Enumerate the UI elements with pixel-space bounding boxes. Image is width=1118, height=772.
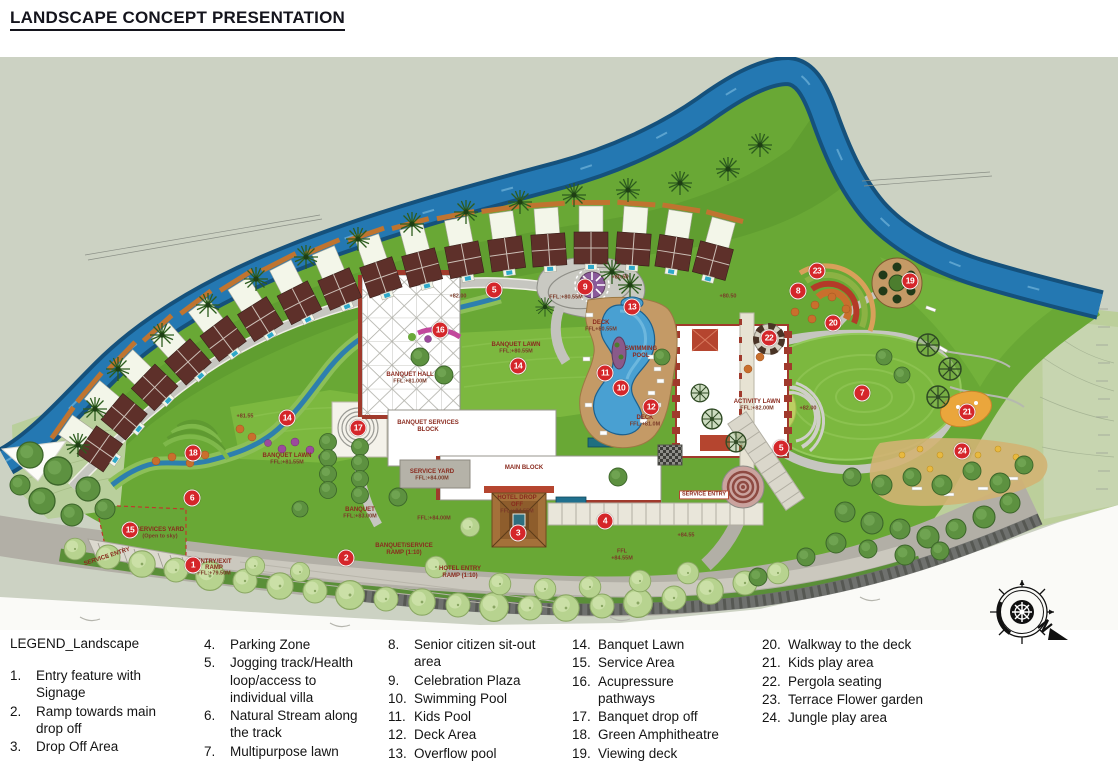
legend-item-11: 11.Kids Pool [388, 708, 550, 725]
legend-item-3: 3.Drop Off Area [10, 738, 160, 755]
legend-item-14: 14.Banquet Lawn [572, 636, 730, 653]
legend-item-9: 9.Celebration Plaza [388, 672, 550, 689]
legend-item-10: 10.Swimming Pool [388, 690, 550, 707]
legend-item-6: 6.Natural Stream along the track [204, 707, 366, 742]
legend-item-13: 13.Overflow pool [388, 745, 550, 762]
legend-item-23: 23.Terrace Flower garden [762, 691, 962, 708]
legend-item-1: 1.Entry feature with Signage [10, 667, 160, 702]
legend-column-1: LEGEND_Landscape 1.Entry feature with Si… [10, 636, 160, 756]
legend-title: LEGEND_Landscape [10, 636, 160, 651]
legend-item-18: 18.Green Amphitheatre [572, 726, 730, 743]
legend-item-7: 7.Multipurpose lawn [204, 743, 366, 760]
legend-item-17: 17.Banquet drop off [572, 708, 730, 725]
presentation-page: LANDSCAPE CONCEPT PRESENTATION [0, 0, 1118, 772]
legend-column-3: 8.Senior citizen sit-out area9.Celebrati… [388, 636, 550, 763]
legend-item-12: 12.Deck Area [388, 726, 550, 743]
legend-item-16: 16.Acupressure pathways [572, 673, 730, 708]
legend-item-20: 20.Walkway to the deck [762, 636, 962, 653]
legend-item-5: 5.Jogging track/Health loop/access to in… [204, 654, 366, 706]
legend-item-15: 15.Service Area [572, 654, 730, 671]
legend-item-24: 24.Jungle play area [762, 709, 962, 726]
legend-item-2: 2.Ramp towards main drop off [10, 703, 160, 738]
legend-item-19: 19.Viewing deck [572, 745, 730, 762]
legend-item-8: 8.Senior citizen sit-out area [388, 636, 550, 671]
legend-item-22: 22.Pergola seating [762, 673, 962, 690]
legend-column-2: 4.Parking Zone5.Jogging track/Health loo… [204, 636, 366, 761]
page-title: LANDSCAPE CONCEPT PRESENTATION [10, 8, 345, 31]
legend-column-5: 20.Walkway to the deck21.Kids play area2… [762, 636, 962, 727]
legend-item-21: 21.Kids play area [762, 654, 962, 671]
site-plan-drawing [0, 57, 1118, 630]
site-plan: BANQUET HALLFFL:+81.00MBANQUET LAWNFFL:+… [0, 57, 1118, 630]
legend-column-4: 14.Banquet Lawn15.Service Area16.Acupres… [572, 636, 730, 763]
legend-item-4: 4.Parking Zone [204, 636, 366, 653]
legend: LEGEND_Landscape 1.Entry feature with Si… [0, 632, 1118, 772]
